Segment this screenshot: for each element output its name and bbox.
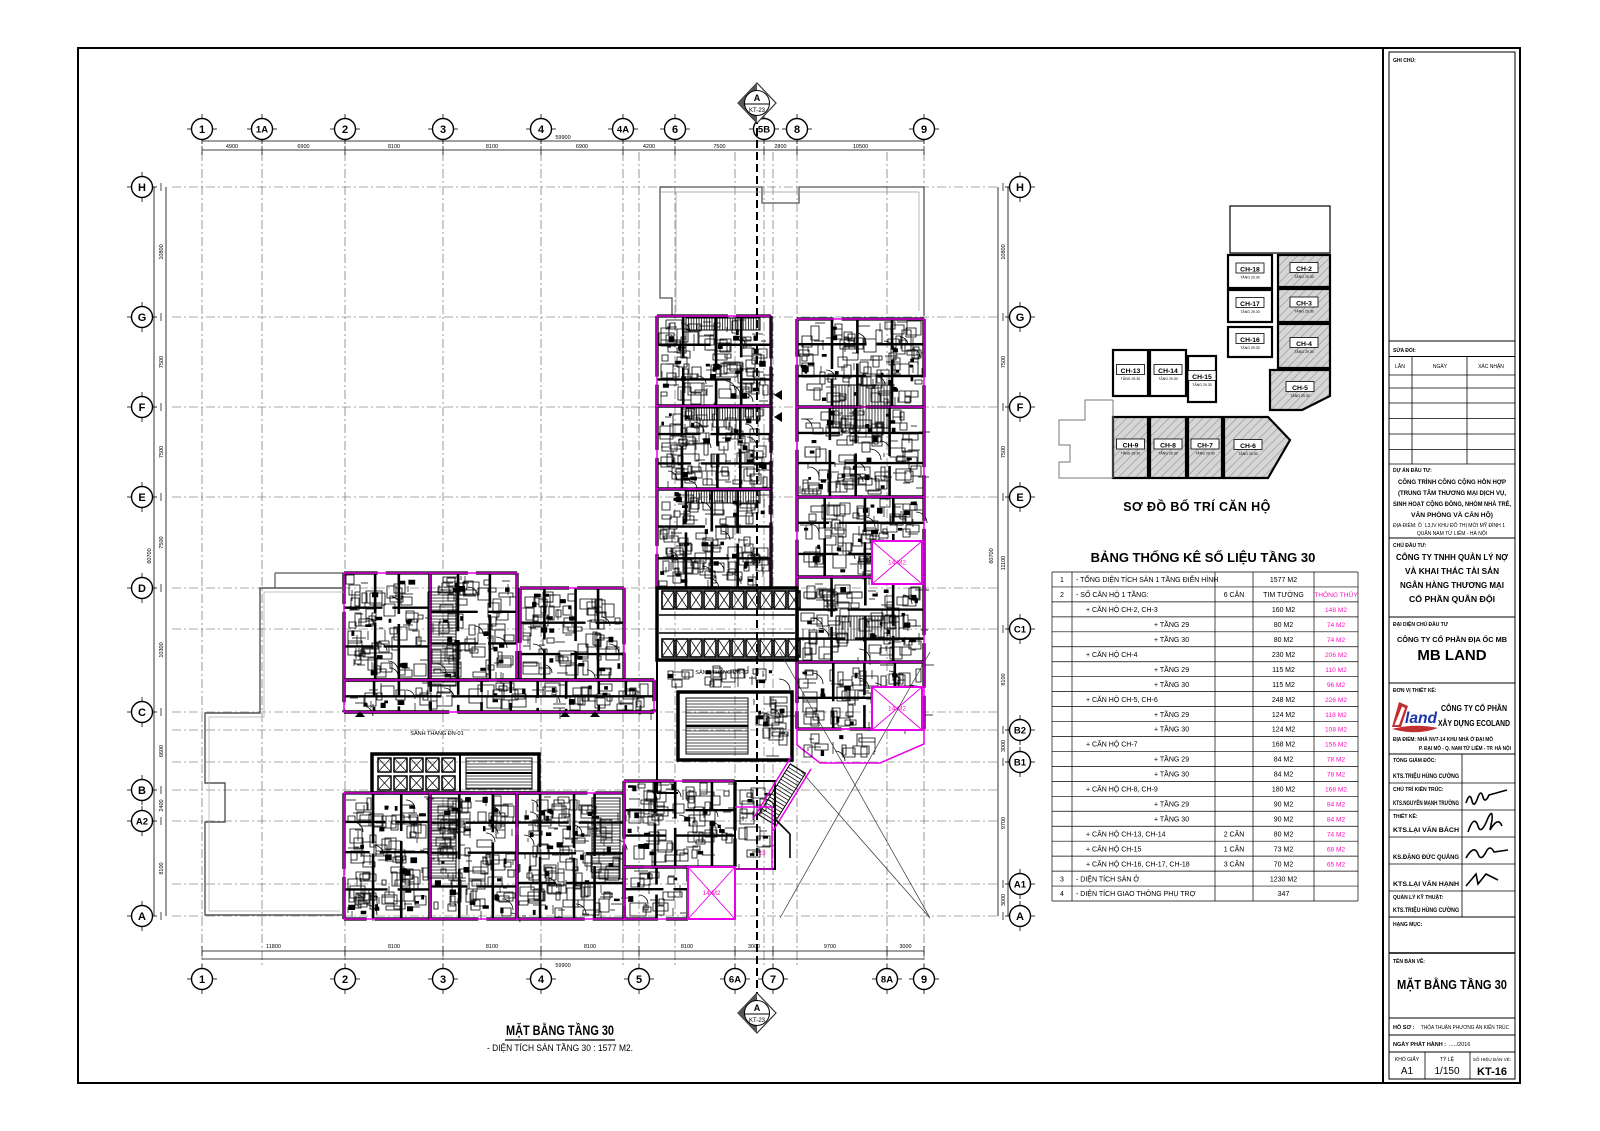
- svg-text:KS.ĐẶNG ĐỨC QUẢNG: KS.ĐẶNG ĐỨC QUẢNG: [1393, 854, 1459, 861]
- svg-text:59900: 59900: [555, 135, 570, 141]
- svg-text:A1: A1: [1401, 1066, 1414, 1077]
- svg-text:14 M2: 14 M2: [888, 560, 906, 567]
- svg-text:68 M2: 68 M2: [1327, 846, 1346, 853]
- svg-text:KTS.TRIỆU HÙNG CƯỜNG: KTS.TRIỆU HÙNG CƯỜNG: [1393, 906, 1459, 914]
- svg-text:11100: 11100: [1001, 556, 1007, 570]
- svg-text:NGÀY: NGÀY: [1433, 363, 1448, 370]
- svg-text:14 M2: 14 M2: [702, 890, 720, 897]
- svg-text:60700: 60700: [989, 548, 995, 563]
- svg-text:11800: 11800: [266, 944, 281, 950]
- svg-text:CÔNG TY CỔ PHẦN ĐỊA ỐC MB: CÔNG TY CỔ PHẦN ĐỊA ỐC MB: [1397, 634, 1508, 644]
- svg-text:8A: 8A: [881, 974, 893, 985]
- svg-text:THỎA THUẬN PHƯƠNG ÁN KIẾN TRÚC: THỎA THUẬN PHƯƠNG ÁN KIẾN TRÚC: [1421, 1024, 1509, 1031]
- svg-text:NGÂN HÀNG THƯƠNG MẠI: NGÂN HÀNG THƯƠNG MẠI: [1400, 579, 1504, 590]
- svg-text:124 M2: 124 M2: [1272, 712, 1295, 719]
- svg-text:347: 347: [1278, 891, 1290, 898]
- svg-text:9700: 9700: [824, 944, 836, 950]
- svg-text:168 M2: 168 M2: [1272, 742, 1295, 749]
- svg-text:CH-18: CH-18: [1240, 267, 1260, 274]
- svg-text:TẦNG 29.30: TẦNG 29.30: [1158, 452, 1178, 456]
- svg-text:8100: 8100: [584, 944, 596, 950]
- svg-text:124 M2: 124 M2: [1272, 727, 1295, 734]
- svg-text:CHỦ ĐẦU TƯ:: CHỦ ĐẦU TƯ:: [1393, 542, 1427, 549]
- svg-text:CH-7: CH-7: [1197, 443, 1213, 450]
- svg-text:6: 6: [672, 124, 678, 136]
- svg-text:(TRUNG TÂM THƯƠNG MẠI DỊCH VỤ,: (TRUNG TÂM THƯƠNG MẠI DỊCH VỤ,: [1398, 488, 1506, 497]
- svg-text:A: A: [1016, 911, 1024, 923]
- svg-text:8100: 8100: [388, 944, 400, 950]
- svg-text:CHỦ TRÌ KIẾN TRÚC:: CHỦ TRÌ KIẾN TRÚC:: [1393, 785, 1444, 793]
- svg-text:156 M2: 156 M2: [1325, 742, 1347, 749]
- svg-text:84 M2: 84 M2: [1327, 816, 1346, 823]
- svg-text:TẦNG 29.30: TẦNG 29.30: [1294, 310, 1314, 314]
- svg-text:7500: 7500: [159, 536, 165, 548]
- svg-text:SỐ HIỆU BẢN VẼ:: SỐ HIỆU BẢN VẼ:: [1473, 1055, 1511, 1062]
- svg-text:2: 2: [342, 974, 348, 986]
- svg-text:CÔNG TRÌNH CÔNG CỘNG HỖN HỢP: CÔNG TRÌNH CÔNG CỘNG HỖN HỢP: [1398, 477, 1506, 486]
- svg-text:8100: 8100: [388, 144, 400, 150]
- svg-text:9: 9: [921, 974, 927, 986]
- svg-text:7500: 7500: [713, 144, 725, 150]
- svg-text:CH-6: CH-6: [1240, 443, 1256, 450]
- svg-text:7500: 7500: [159, 446, 165, 458]
- svg-text:84 M2: 84 M2: [1327, 801, 1346, 808]
- svg-text:108 M2: 108 M2: [1325, 727, 1347, 734]
- svg-text:F: F: [139, 402, 146, 414]
- svg-text:10300: 10300: [159, 642, 165, 657]
- svg-text:TỶ LỆ: TỶ LỆ: [1440, 1055, 1455, 1063]
- svg-text:73 M2: 73 M2: [1274, 846, 1294, 853]
- svg-text:KTS.LẠI VĂN BÁCH: KTS.LẠI VĂN BÁCH: [1393, 827, 1459, 834]
- svg-text:115 M2: 115 M2: [1272, 682, 1295, 689]
- svg-text:SƠ ĐỒ BỐ TRÍ CĂN HỘ: SƠ ĐỒ BỐ TRÍ CĂN HỘ: [1123, 499, 1270, 514]
- svg-text:65 M2: 65 M2: [1327, 861, 1346, 868]
- svg-text:THIẾT KẾ:: THIẾT KẾ:: [1393, 813, 1418, 820]
- svg-text:+ CĂN HỘ CH-16, CH-17, CH-18: + CĂN HỘ CH-16, CH-17, CH-18: [1086, 859, 1190, 868]
- svg-text:D: D: [138, 583, 146, 595]
- svg-text:ĐỊA ĐIỂM: Ô `L3,IV KHU ĐÔ THỊ: ĐỊA ĐIỂM: Ô `L3,IV KHU ĐÔ THỊ MỚI MỸ ĐÌN…: [1393, 522, 1505, 529]
- svg-text:90 M2: 90 M2: [1274, 801, 1294, 808]
- svg-text:A: A: [754, 1003, 761, 1013]
- svg-text:MẶT BẰNG TẦNG 30: MẶT BẰNG TẦNG 30: [1397, 977, 1507, 992]
- svg-text:LẦN: LẦN: [1395, 363, 1405, 370]
- svg-text:5B: 5B: [758, 124, 770, 135]
- svg-text:9: 9: [921, 124, 927, 136]
- svg-text:KTS.LẠI VĂN HẠNH: KTS.LẠI VĂN HẠNH: [1393, 881, 1459, 888]
- svg-text:G: G: [138, 312, 147, 324]
- svg-text:74 M2: 74 M2: [1327, 637, 1346, 644]
- svg-text:96 M2: 96 M2: [1327, 682, 1346, 689]
- svg-text:C1: C1: [1014, 624, 1027, 635]
- svg-text:110 M2: 110 M2: [1325, 667, 1347, 674]
- svg-text:- DIỆN TÍCH SÀN TẦNG 30 : 1577: - DIỆN TÍCH SÀN TẦNG 30 : 1577 M2.: [487, 1043, 633, 1053]
- svg-text:SỬA ĐỔI:: SỬA ĐỔI:: [1393, 347, 1416, 354]
- svg-text:QUẬN NAM TỪ LIÊM - HÀ NỘI: QUẬN NAM TỪ LIÊM - HÀ NỘI: [1417, 529, 1487, 537]
- svg-text:+ CĂN HỘ CH-2, CH-3: + CĂN HỘ CH-2, CH-3: [1086, 605, 1158, 614]
- svg-text:60700: 60700: [147, 548, 153, 563]
- svg-text:CÔNG TY CỔ PHẦN: CÔNG TY CỔ PHẦN: [1441, 703, 1507, 713]
- svg-text:2 CĂN: 2 CĂN: [1224, 829, 1245, 838]
- svg-text:160 M2: 160 M2: [1272, 607, 1295, 614]
- svg-text:land: land: [1405, 710, 1438, 727]
- svg-text:TẦNG 29.30: TẦNG 29.30: [1121, 452, 1141, 456]
- svg-text:MẶT BẰNG TẦNG 30: MẶT BẰNG TẦNG 30: [506, 1023, 614, 1038]
- svg-text:2: 2: [342, 124, 348, 136]
- svg-text:10800: 10800: [159, 244, 165, 259]
- svg-text:80 M2: 80 M2: [1274, 831, 1294, 838]
- svg-text:XÁC NHẬN: XÁC NHẬN: [1478, 363, 1504, 370]
- svg-text:+ CĂN HỘ CH-7: + CĂN HỘ CH-7: [1086, 740, 1138, 749]
- svg-text:TẦNG 29.30: TẦNG 29.30: [1240, 276, 1260, 280]
- svg-text:1: 1: [1060, 577, 1064, 584]
- svg-text:H: H: [138, 182, 146, 194]
- svg-text:6A: 6A: [729, 974, 741, 985]
- svg-text:80 M2: 80 M2: [1274, 622, 1294, 629]
- svg-text:BẢNG THỐNG KÊ SỐ LIỆU TẦNG 30: BẢNG THỐNG KÊ SỐ LIỆU TẦNG 30: [1091, 550, 1316, 565]
- svg-text:CH-14: CH-14: [1158, 368, 1178, 375]
- svg-text:G: G: [1016, 312, 1025, 324]
- svg-text:DỰ ÁN ĐẦU TƯ:: DỰ ÁN ĐẦU TƯ:: [1393, 467, 1432, 474]
- svg-text:- DIỆN TÍCH SÀN Ở: - DIỆN TÍCH SÀN Ở: [1076, 874, 1139, 883]
- svg-text:1: 1: [199, 974, 205, 986]
- svg-text:4A: 4A: [617, 124, 629, 135]
- svg-text:84 M2: 84 M2: [1274, 757, 1294, 764]
- svg-text:HỒ SƠ :: HỒ SƠ :: [1393, 1024, 1415, 1031]
- svg-text:9700: 9700: [1001, 817, 1007, 829]
- svg-text:ĐƠN VỊ THIẾT KẾ:: ĐƠN VỊ THIẾT KẾ:: [1393, 687, 1437, 694]
- svg-text:CH-15: CH-15: [1192, 374, 1212, 381]
- svg-text:P. ĐẠI MỖ - Q. NAM TỪ LIÊM - T: P. ĐẠI MỖ - Q. NAM TỪ LIÊM - TP. HÀ NỘI: [1419, 744, 1512, 752]
- svg-text:THÔNG THỦY: THÔNG THỦY: [1314, 590, 1358, 599]
- svg-text:1 CĂN: 1 CĂN: [1224, 844, 1245, 853]
- svg-text:80 M2: 80 M2: [1274, 637, 1294, 644]
- svg-text:10500: 10500: [853, 144, 868, 150]
- svg-text:8100: 8100: [159, 862, 165, 874]
- svg-text:+ CĂN HỘ CH-13, CH-14: + CĂN HỘ CH-13, CH-14: [1086, 829, 1166, 838]
- svg-text:ĐỊA ĐIỂM: NHÀ NV7-14 KHU NHÀ Ở: ĐỊA ĐIỂM: NHÀ NV7-14 KHU NHÀ Ở ĐẠI MỖ: [1393, 736, 1493, 743]
- svg-text:KT-16: KT-16: [1477, 1066, 1507, 1078]
- svg-text:TẦNG 29.30: TẦNG 29.30: [1240, 310, 1260, 314]
- svg-text:TÊN BẢN VẼ:: TÊN BẢN VẼ:: [1393, 957, 1425, 965]
- svg-text:230 M2: 230 M2: [1272, 652, 1295, 659]
- svg-text:NGÀY PHÁT HÀNH :: NGÀY PHÁT HÀNH :: [1393, 1041, 1446, 1048]
- svg-text:TẦNG 29.30: TẦNG 29.30: [1238, 452, 1258, 456]
- svg-text:118 M2: 118 M2: [1325, 712, 1347, 719]
- svg-text:2800: 2800: [774, 144, 786, 150]
- svg-text:KHỔ GIẤY: KHỔ GIẤY: [1395, 1056, 1420, 1063]
- svg-text:TẦNG 29.30: TẦNG 29.30: [1192, 383, 1212, 387]
- svg-text:TẦNG 29.30: TẦNG 29.30: [1195, 452, 1215, 456]
- svg-text:C: C: [138, 707, 146, 719]
- svg-text:74 M2: 74 M2: [1327, 622, 1346, 629]
- svg-text:TẦNG 29.30: TẦNG 29.30: [1121, 377, 1141, 381]
- svg-text:248 M2: 248 M2: [1272, 697, 1295, 704]
- svg-text:59900: 59900: [555, 963, 570, 969]
- svg-text:A: A: [754, 93, 761, 103]
- svg-text:8: 8: [794, 124, 800, 136]
- svg-text:7500: 7500: [159, 356, 165, 368]
- svg-text:+ CĂN HỘ CH-15: + CĂN HỘ CH-15: [1086, 844, 1142, 853]
- svg-text:A1: A1: [1014, 879, 1027, 890]
- svg-text:2: 2: [1060, 592, 1064, 599]
- svg-text:168 M2: 168 M2: [1325, 787, 1347, 794]
- svg-text:HẠNG MỤC:: HẠNG MỤC:: [1393, 922, 1422, 928]
- svg-text:10800: 10800: [1001, 244, 1007, 259]
- svg-text:90 M2: 90 M2: [1274, 816, 1294, 823]
- svg-text:4900: 4900: [226, 144, 238, 150]
- svg-text:1/150: 1/150: [1434, 1066, 1459, 1077]
- svg-text:4200: 4200: [643, 144, 655, 150]
- svg-text:14 M2: 14 M2: [888, 706, 906, 713]
- svg-text:VÀ KHAI THÁC TÀI SẢN: VÀ KHAI THÁC TÀI SẢN: [1405, 565, 1499, 576]
- svg-text:CH-17: CH-17: [1240, 301, 1260, 308]
- svg-text:2400: 2400: [159, 799, 165, 811]
- svg-text:6600: 6600: [159, 745, 165, 757]
- svg-text:E: E: [138, 492, 145, 504]
- svg-text:78 M2: 78 M2: [1327, 757, 1346, 764]
- svg-text:KT-23: KT-23: [749, 108, 766, 114]
- svg-text:3 CĂN: 3 CĂN: [1224, 859, 1245, 868]
- svg-text:B1: B1: [1014, 757, 1027, 768]
- svg-text:3000: 3000: [1001, 894, 1007, 906]
- svg-text:VĂN PHÒNG VÀ CĂN HỘ): VĂN PHÒNG VÀ CĂN HỘ): [1411, 510, 1493, 519]
- svg-text:QUẢN LÝ KỸ THUẬT:: QUẢN LÝ KỸ THUẬT:: [1393, 894, 1444, 901]
- svg-text:A: A: [138, 911, 146, 923]
- svg-text:+ CĂN HỘ CH-5, CH-6: + CĂN HỘ CH-5, CH-6: [1086, 695, 1158, 704]
- svg-text:4: 4: [538, 974, 545, 986]
- svg-text:CH-4: CH-4: [1296, 341, 1312, 348]
- svg-text:KTS.NGUYỄN MẠNH TRƯỜNG: KTS.NGUYỄN MẠNH TRƯỜNG: [1393, 799, 1459, 807]
- svg-text:TẦNG 29.30: TẦNG 29.30: [1294, 350, 1314, 354]
- svg-text:5: 5: [636, 974, 642, 986]
- svg-text:3: 3: [440, 124, 446, 136]
- svg-text:84 M2: 84 M2: [1274, 772, 1294, 779]
- svg-text:4: 4: [538, 124, 545, 136]
- svg-text:B2: B2: [1014, 725, 1026, 736]
- svg-text:3000: 3000: [899, 944, 911, 950]
- svg-text:1230 M2: 1230 M2: [1270, 876, 1297, 883]
- svg-text:TỔNG GIÁM ĐỐC:: TỔNG GIÁM ĐỐC:: [1393, 757, 1436, 764]
- svg-text:F: F: [1017, 402, 1024, 414]
- svg-text:MB LAND: MB LAND: [1417, 647, 1486, 664]
- svg-text:78 M2: 78 M2: [1327, 772, 1346, 779]
- svg-text:6900: 6900: [297, 144, 309, 150]
- svg-text:B: B: [138, 785, 146, 797]
- svg-text:23: 23: [758, 850, 766, 857]
- svg-text:7500: 7500: [1001, 356, 1007, 368]
- svg-text:TIM TƯỜNG: TIM TƯỜNG: [1263, 590, 1304, 599]
- svg-text:4: 4: [1060, 891, 1064, 898]
- svg-text:KT-23: KT-23: [749, 1018, 766, 1024]
- svg-text:1577 M2: 1577 M2: [1270, 577, 1297, 584]
- svg-text:+ CĂN HỘ CH-8, CH-9: + CĂN HỘ CH-8, CH-9: [1086, 785, 1158, 794]
- svg-text:- DIỆN TÍCH GIAO THÔNG PHỤ TRỢ: - DIỆN TÍCH GIAO THÔNG PHỤ TRỢ: [1076, 889, 1196, 898]
- svg-text:8100: 8100: [1001, 673, 1007, 685]
- svg-text:CÔNG TY TNHH QUẢN LÝ NỢ: CÔNG TY TNHH QUẢN LÝ NỢ: [1396, 551, 1509, 562]
- svg-text:ĐẠI DIỆN CHỦ ĐẦU TƯ: ĐẠI DIỆN CHỦ ĐẦU TƯ: [1393, 620, 1449, 628]
- svg-text:TẦNG 29.30: TẦNG 29.30: [1294, 275, 1314, 279]
- svg-text:TẦNG 29.30: TẦNG 29.30: [1158, 377, 1178, 381]
- svg-text:115 M2: 115 M2: [1272, 667, 1295, 674]
- svg-text:H: H: [1016, 182, 1024, 194]
- svg-text:7: 7: [770, 974, 776, 986]
- svg-text:KTS.TRIỆU HÙNG CƯỜNG: KTS.TRIỆU HÙNG CƯỜNG: [1393, 772, 1459, 780]
- svg-text:CH-9: CH-9: [1123, 443, 1139, 450]
- svg-text:...../2016: ...../2016: [1449, 1042, 1470, 1048]
- svg-text:CH-16: CH-16: [1240, 337, 1260, 344]
- svg-text:1A: 1A: [256, 124, 268, 135]
- svg-text:70 M2: 70 M2: [1274, 861, 1294, 868]
- svg-text:CH-2: CH-2: [1296, 266, 1312, 273]
- svg-text:3: 3: [440, 974, 446, 986]
- svg-text:TẦNG 29.30: TẦNG 29.30: [1290, 394, 1310, 398]
- svg-text:6 CĂN: 6 CĂN: [1224, 590, 1245, 599]
- svg-text:1: 1: [199, 124, 205, 136]
- svg-text:180 M2: 180 M2: [1272, 787, 1295, 794]
- svg-text:148 M2: 148 M2: [1325, 607, 1347, 614]
- svg-text:6900: 6900: [576, 144, 588, 150]
- svg-text:CH-5: CH-5: [1292, 385, 1308, 392]
- svg-text:8100: 8100: [486, 144, 498, 150]
- svg-text:SẢNH THANG ĐN-01: SẢNH THANG ĐN-01: [410, 730, 463, 737]
- svg-text:A2: A2: [136, 816, 148, 827]
- svg-text:3: 3: [1060, 876, 1064, 883]
- svg-text:206 M2: 206 M2: [1325, 652, 1347, 659]
- svg-text:CH-13: CH-13: [1121, 368, 1141, 375]
- svg-text:226 M2: 226 M2: [1325, 697, 1347, 704]
- svg-text:CH-8: CH-8: [1160, 443, 1176, 450]
- svg-text:3000: 3000: [1001, 740, 1007, 752]
- svg-text:+ CĂN HỘ CH-4: + CĂN HỘ CH-4: [1086, 650, 1138, 659]
- svg-text:8100: 8100: [681, 944, 693, 950]
- svg-text:8100: 8100: [486, 944, 498, 950]
- svg-text:3000: 3000: [748, 944, 760, 950]
- svg-text:CỔ PHẦN QUÂN ĐỘI: CỔ PHẦN QUÂN ĐỘI: [1409, 593, 1495, 604]
- svg-text:XÂY DỰNG ECOLAND: XÂY DỰNG ECOLAND: [1438, 719, 1510, 728]
- svg-text:GHI CHÚ:: GHI CHÚ:: [1393, 57, 1416, 64]
- svg-text:CH-3: CH-3: [1296, 301, 1312, 308]
- svg-text:74 M2: 74 M2: [1327, 831, 1346, 838]
- svg-text:7500: 7500: [1001, 446, 1007, 458]
- svg-text:TẦNG 29.30: TẦNG 29.30: [1240, 346, 1260, 350]
- svg-text:E: E: [1016, 492, 1023, 504]
